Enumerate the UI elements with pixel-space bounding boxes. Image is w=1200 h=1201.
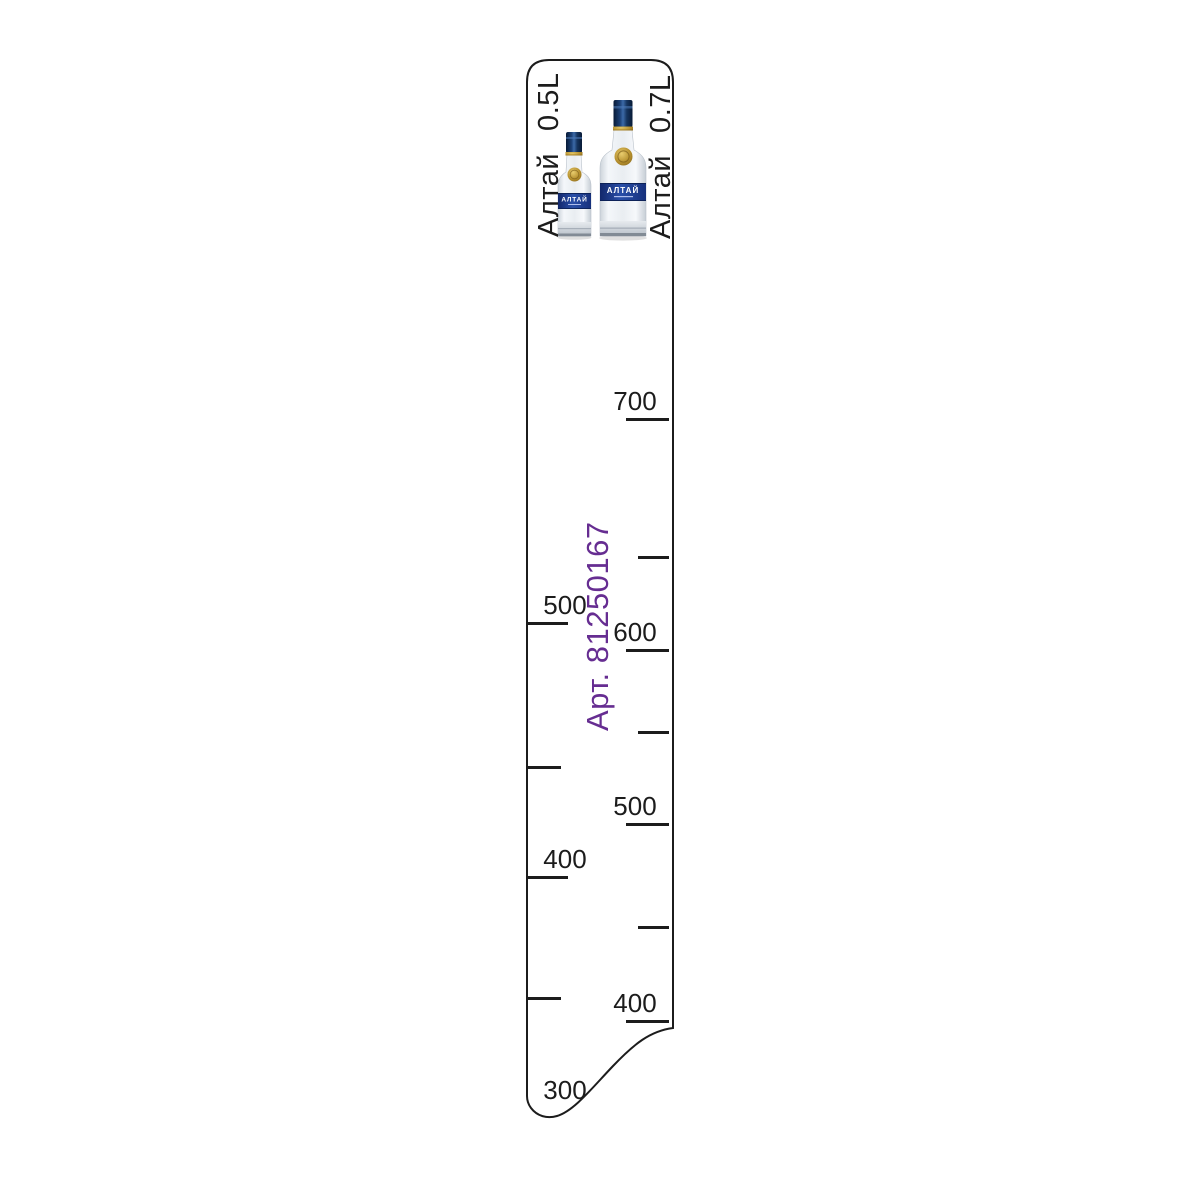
right-volume-header: Алтай0.7L xyxy=(646,74,676,239)
bottle-cap xyxy=(614,100,633,127)
cap-highlight xyxy=(614,106,633,109)
label-band-edge-top xyxy=(600,183,646,184)
left-volume-header: Алтай0.5L xyxy=(534,72,564,237)
volume-label-0-7l: 0.7L xyxy=(645,74,677,132)
scale-label-right-600: 600 xyxy=(600,618,670,646)
label-text: АЛТАЙ xyxy=(607,186,639,195)
label-subline xyxy=(614,196,633,197)
cap-gold-ring xyxy=(613,127,633,131)
scale-tick-right xyxy=(626,418,669,421)
scale-label-left-500: 500 xyxy=(530,591,600,619)
scale-tick-left xyxy=(528,622,568,625)
brand-name-left: Алтай xyxy=(533,153,565,237)
base-bottom xyxy=(600,233,646,236)
scale-tick-right xyxy=(638,556,669,559)
gold-emblem xyxy=(568,168,582,182)
scale-label-right-700: 700 xyxy=(600,387,670,415)
scale-tick-right xyxy=(626,649,669,652)
bottle-cap xyxy=(566,132,582,153)
scale-tick-left xyxy=(528,766,561,769)
scale-label-right-500: 500 xyxy=(600,792,670,820)
cap-gold-ring xyxy=(566,152,583,156)
scale-label-left-300: 300 xyxy=(530,1076,600,1104)
scale-label-left-400: 400 xyxy=(530,845,600,873)
brand-name-right: Алтай xyxy=(645,155,677,239)
scale-tick-left xyxy=(528,997,561,1000)
scale-label-right-400: 400 xyxy=(600,989,670,1017)
bottle-0-7l: АЛТАЙ xyxy=(599,100,647,241)
label-text: АЛТАЙ xyxy=(561,195,587,204)
gold-emblem xyxy=(615,148,633,166)
scale-tick-right xyxy=(638,926,669,929)
label-band-edge-bottom xyxy=(600,200,646,201)
volume-label-0-5l: 0.5L xyxy=(533,72,565,130)
scale-tick-right xyxy=(626,1020,669,1023)
base-line xyxy=(600,228,646,229)
scale-tick-right xyxy=(638,731,669,734)
scale-tick-left xyxy=(528,876,568,879)
label-subline xyxy=(568,204,581,205)
product-image-canvas: АЛТАЙ АЛТАЙ Алтай0.5L xyxy=(0,0,1200,1201)
cap-highlight xyxy=(566,137,582,139)
scale-tick-right xyxy=(626,823,669,826)
